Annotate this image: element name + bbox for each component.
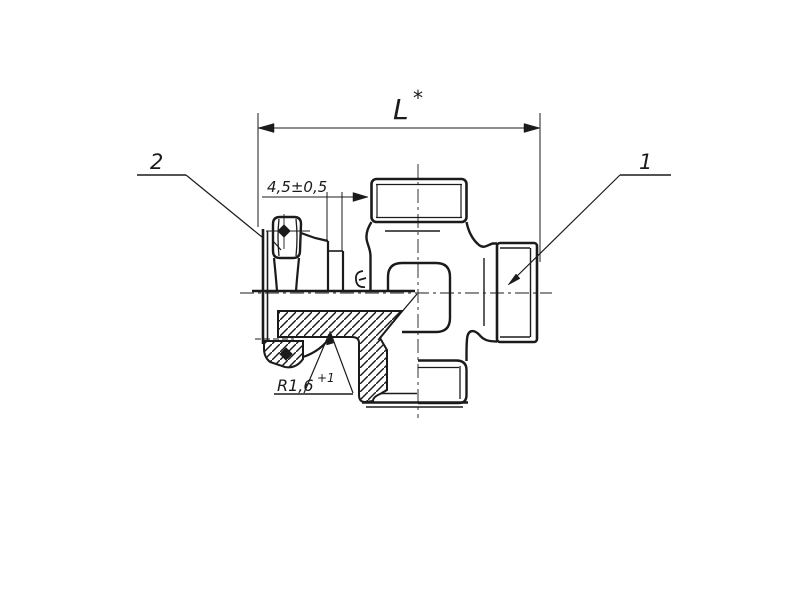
offset-dimension-label: 4,5±0,5 [267,178,327,196]
cap-waist-left [274,258,277,291]
center-bore-outline [388,263,450,332]
arrowhead [353,193,368,202]
arrowhead-left [258,124,274,133]
callout-2 [137,175,262,237]
leader-line [186,175,262,237]
drawing-sheet: L * 4,5±0,5 R1,6 +1 2 1 [0,0,800,600]
callout-1-label: 1 [639,150,652,174]
arrowhead-right [524,124,540,133]
shoulder-right [467,222,498,247]
cap-hex-facet-left [278,219,279,256]
part-1-plug [497,243,537,342]
neck-left [366,222,371,291]
leader-line [510,175,620,283]
retaining-ring-detail [356,271,366,287]
radius-tolerance-label: +1 [317,371,335,385]
radius-label: R1,6 [277,376,314,395]
cap-waist-right [296,258,299,291]
stem-top-edge [301,233,328,241]
technical-drawing: L * 4,5±0,5 R1,6 +1 2 1 [0,0,800,600]
length-dimension-label: L [393,93,409,126]
lower-right-shoulder [467,331,498,361]
center-punch-mark-top [278,225,290,237]
length-dimension-asterisk: * [413,86,423,110]
callout-2-label: 2 [150,150,163,174]
top-boss-outline [372,179,467,222]
callout-1 [508,175,671,285]
cap-hex-facet-right [296,219,297,256]
